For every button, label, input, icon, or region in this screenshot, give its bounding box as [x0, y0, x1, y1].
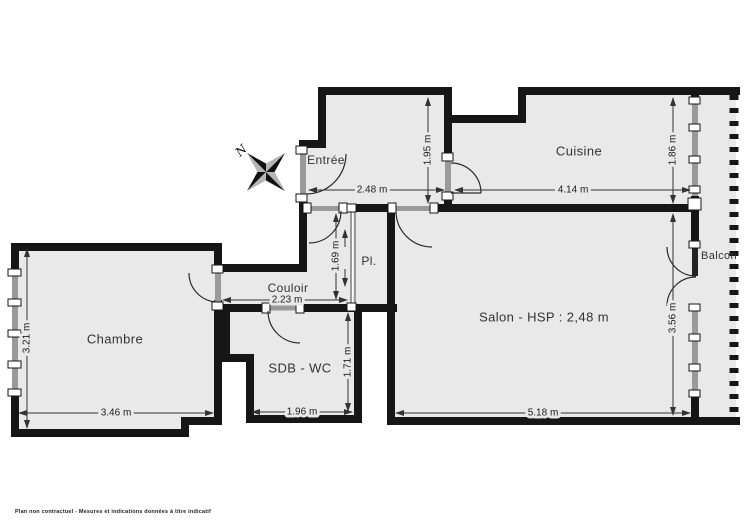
balcony-door-leaf — [692, 247, 698, 276]
dim-label: 5.18 m — [528, 408, 559, 419]
dim-label: 3.46 m — [101, 408, 132, 419]
placard-sliding-door — [350, 212, 352, 304]
dim-label: 2.48 m — [357, 185, 388, 196]
dim-label: 1.95 m — [423, 135, 434, 166]
dim-label: 1.86 m — [668, 135, 679, 166]
entrance-door-frame — [300, 154, 306, 194]
dim-label: 3.21 m — [22, 323, 33, 354]
floor-plan-page: 2.48 m 1.95 m 4.14 m 1.86 m 2.23 m 1.69 … — [0, 0, 750, 530]
salon-window — [692, 307, 698, 394]
placard-sliding-door — [354, 212, 356, 304]
salon-door-leaf — [396, 206, 432, 211]
room-label-salon: Salon - HSP : 2,48 m — [479, 309, 609, 324]
dim-label: 1.69 m — [331, 241, 342, 272]
room-label-balcon: Balcon — [701, 250, 737, 262]
room-label-couloir: Couloir — [268, 281, 309, 295]
dim-label: 1.96 m — [287, 407, 318, 418]
north-indicator: N — [232, 141, 250, 159]
room-label-sdb: SDB - WC — [268, 360, 331, 375]
room-label-entree: Entrée — [307, 153, 345, 167]
cuisine-door-frame — [445, 161, 451, 192]
entree-couloir-door-leaf — [309, 206, 341, 211]
footer-disclaimer: Plan non contractuel - Mesures et indica… — [15, 509, 211, 515]
cuisine-window — [692, 101, 698, 196]
compass-rose: N — [232, 141, 285, 191]
room-label-placard: Pl. — [361, 254, 376, 268]
dim-label: 1.71 m — [343, 347, 354, 378]
dim-label: 4.14 m — [558, 185, 589, 196]
room-label-chambre: Chambre — [87, 331, 143, 346]
dim-label: 3.56 m — [668, 303, 679, 334]
sdb-door-leaf — [268, 306, 298, 311]
floor-plan-drawing: 2.48 m 1.95 m 4.14 m 1.86 m 2.23 m 1.69 … — [0, 0, 750, 530]
room-label-cuisine: Cuisine — [556, 143, 602, 158]
dim-label: 2.23 m — [272, 295, 303, 306]
chambre-door-frame — [215, 273, 221, 302]
